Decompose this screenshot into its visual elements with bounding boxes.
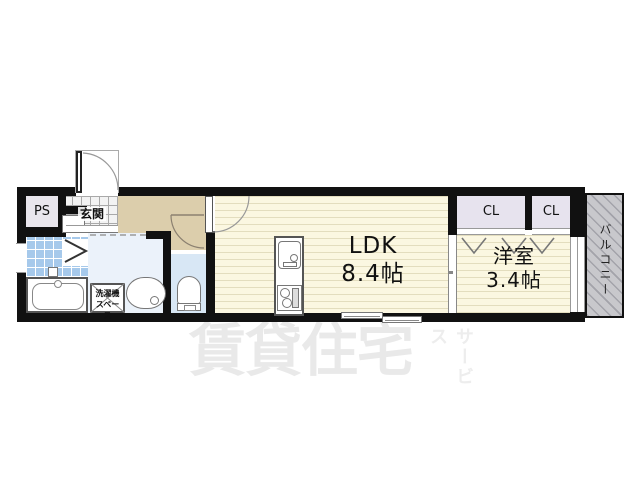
closet-left-label: CL: [457, 204, 525, 220]
room-hallway: [118, 196, 206, 233]
stove-grill: [292, 288, 299, 308]
toilet-bowl: [177, 276, 201, 304]
washbasin: [126, 277, 166, 309]
floorplan-image: 賃貸住宅 サービス: [0, 0, 640, 480]
washbasin-faucet: [150, 296, 159, 305]
closet-right-track: [532, 228, 570, 235]
toilet-tank: [177, 303, 201, 311]
western-room-name: 洋室: [456, 244, 572, 268]
wall-ldk-left: [206, 231, 215, 313]
ps-label: PS: [26, 204, 58, 220]
kitchen-sink: [278, 241, 301, 269]
ldk-door-leaf: [205, 196, 213, 233]
entrance-label: 玄関: [78, 207, 106, 221]
western-room-label: 洋室 3.4帖: [456, 244, 572, 292]
ldk-window-pane-left: [341, 312, 383, 319]
ldk-size: 8.4帖: [300, 261, 446, 289]
bathroom-door-opening: [62, 239, 88, 266]
western-room-size: 3.4帖: [456, 268, 572, 292]
wall-ps-bottom: [17, 227, 66, 237]
stove-burner-2: [282, 298, 292, 308]
bathtub: [26, 277, 88, 313]
toilet-lid-detail: [184, 305, 196, 311]
toilet-vestibule: [171, 233, 206, 250]
ldk-window-pane-right: [382, 316, 422, 323]
stove-burner-1: [280, 288, 290, 298]
entrance-step: [66, 225, 118, 233]
bathtub-faucet: [54, 280, 62, 288]
kitchen-sink-bar: [283, 262, 297, 267]
bathroom-window: [16, 243, 26, 273]
laundry-space-box: 洗濯機 スペース: [90, 283, 125, 313]
balcony-label: バルコニー: [597, 223, 614, 313]
closet-right-label: CL: [532, 204, 570, 220]
wall-ldk-western: [448, 187, 457, 235]
western-window: [570, 237, 585, 312]
wall-washroom-top-stub: [146, 231, 171, 239]
watermark-subtext: サービス: [424, 327, 476, 399]
laundry-space-label: 洗濯機 スペース: [92, 289, 123, 321]
kitchen-stove: [277, 285, 302, 311]
ldk-name: LDK: [300, 233, 446, 261]
kitchen-faucet: [290, 254, 298, 262]
watermark-text: 賃貸住宅: [189, 323, 413, 380]
wall-closet-divider: [525, 194, 532, 230]
sliding-door-handle: [448, 271, 453, 274]
entrance-door-leaf: [76, 151, 82, 193]
closet-left-track: [457, 228, 525, 235]
wall-washroom-toilet: [163, 231, 171, 313]
bath-step: [48, 267, 58, 277]
ldk-label: LDK 8.4帖: [300, 233, 446, 288]
